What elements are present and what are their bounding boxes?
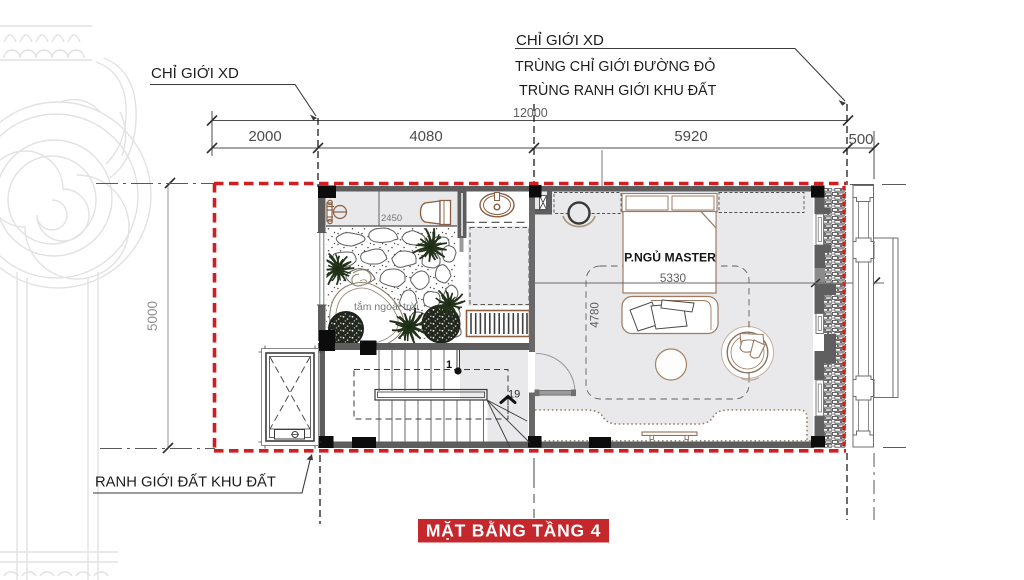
svg-text:2000: 2000 [248, 128, 281, 145]
svg-text:CHỈ GIỚI XD: CHỈ GIỚI XD [516, 32, 604, 49]
svg-text:TRÙNG RANH GIỚI KHU ĐẤT: TRÙNG RANH GIỚI KHU ĐẤT [519, 82, 717, 99]
svg-text:5920: 5920 [674, 128, 707, 145]
svg-text:5330: 5330 [660, 271, 687, 285]
svg-text:2450: 2450 [381, 213, 402, 224]
svg-text:12000: 12000 [513, 106, 548, 120]
svg-text:4780: 4780 [590, 302, 602, 328]
svg-text:RANH GIỚI ĐẤT KHU ĐẤT: RANH GIỚI ĐẤT KHU ĐẤT [95, 474, 276, 491]
svg-text:P.NGỦ MASTER: P.NGỦ MASTER [624, 250, 716, 265]
svg-text:TRÙNG CHỈ GIỚI ĐƯỜNG ĐỎ: TRÙNG CHỈ GIỚI ĐƯỜNG ĐỎ [515, 57, 715, 75]
svg-text:500: 500 [848, 131, 873, 148]
svg-text:CHỈ GIỚI XD: CHỈ GIỚI XD [151, 65, 239, 82]
svg-text:tắm ngoài trời: tắm ngoài trời [354, 300, 419, 313]
svg-text:4080: 4080 [409, 128, 442, 145]
svg-text:MẶT BẰNG TẦNG 4: MẶT BẰNG TẦNG 4 [426, 520, 601, 541]
svg-text:5000: 5000 [145, 301, 160, 331]
svg-text:1: 1 [446, 359, 452, 371]
